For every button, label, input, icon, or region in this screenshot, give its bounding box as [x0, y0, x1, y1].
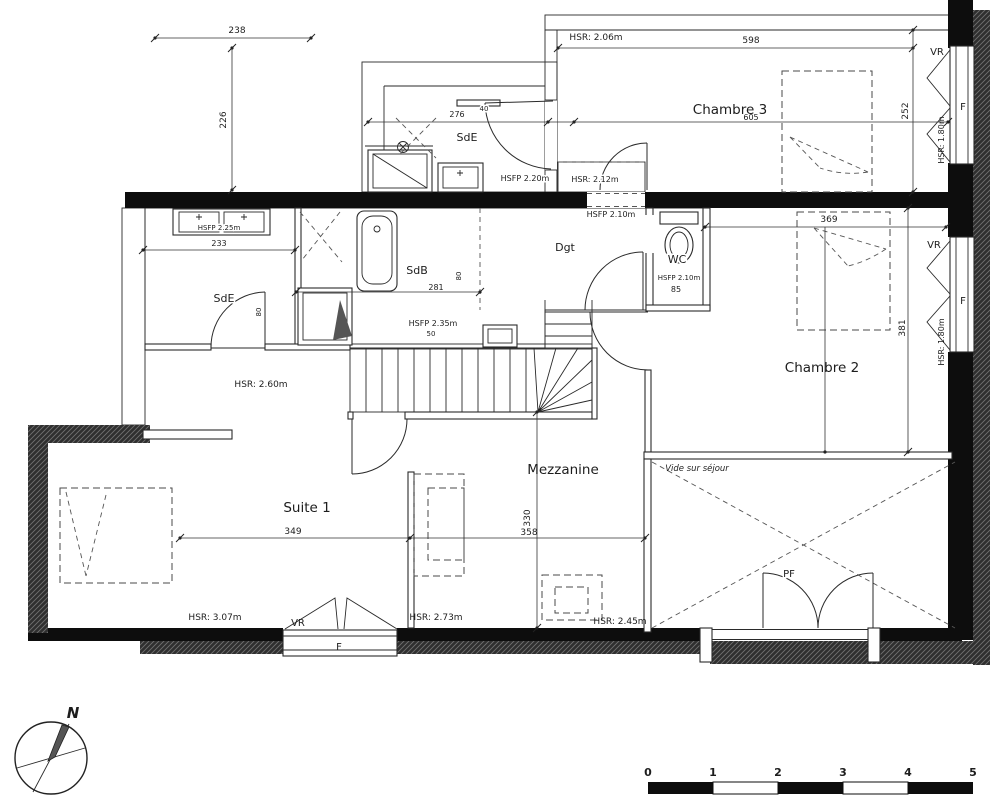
room-label-wc: WC [668, 253, 687, 266]
scale-tick-2: 2 [774, 766, 782, 779]
floor-plan-page: SdE Chambre 3 Dgt WC SdE SdB Chambre 2 S… [0, 0, 992, 800]
dim-door-sde: 80 [255, 308, 263, 317]
dim-line-369 [701, 223, 950, 454]
wall-suite1-top-dark [28, 425, 150, 443]
room-label-dgt: Dgt [555, 241, 575, 254]
dim-349: 349 [284, 527, 301, 537]
room-label-mezzanine: Mezzanine [527, 462, 599, 478]
door-sde-top [485, 101, 553, 169]
window-label-chambre3: F [960, 102, 966, 113]
dim-598: 598 [742, 36, 759, 46]
floor-plan-drawing: SdE Chambre 3 Dgt WC SdE SdB Chambre 2 S… [0, 0, 992, 800]
dim-605: 605 [743, 113, 758, 122]
wall-gap-chambre3-door [587, 192, 645, 208]
wall-right-texture [973, 10, 990, 665]
door-mezzanine [352, 419, 407, 474]
stair-treads [366, 300, 592, 412]
scale-tick-4: 4 [904, 766, 912, 779]
wardrobe-mezzanine-inner [428, 488, 464, 560]
dim-238: 238 [228, 26, 245, 36]
wall-bottom-texture-left [140, 641, 710, 654]
label-hsr-mezzanine-right: HSR: 2.45m [593, 617, 646, 627]
room-label-sdb: SdB [406, 264, 428, 277]
wall-suite1-left [28, 443, 48, 633]
wall-bottom-right [880, 628, 962, 641]
dim-85: 85 [671, 285, 681, 294]
dim-50: 50 [427, 330, 436, 338]
stair-landing-wall [348, 412, 592, 419]
label-hsr-window-top: HSR: 1.80m [937, 116, 946, 163]
room-label-suite1: Suite 1 [283, 500, 330, 516]
stairs [350, 300, 592, 412]
scale-tick-3: 3 [839, 766, 847, 779]
wall-suite1-top-inner [143, 430, 232, 439]
label-hsr-chambre3: HSR: 2.06m [569, 33, 622, 43]
dim-281: 281 [428, 283, 443, 292]
hatch-opening-mezzanine-inner [555, 587, 588, 613]
label-hsfp-sde-left: HSFP 2.25m [198, 224, 241, 232]
wall-bottom-left2 [397, 628, 710, 641]
wall-right-seg2 [948, 163, 973, 237]
compass: N [15, 704, 87, 794]
bed-suite1 [60, 488, 172, 583]
dim-233: 233 [211, 239, 226, 248]
shutter-label-suite1: VR [291, 618, 305, 629]
shutter-label-chambre2: VR [927, 240, 941, 251]
hatch-top-band [545, 15, 950, 30]
scale-bar: 0 1 2 3 4 5 [644, 766, 977, 794]
french-door-label: PF [783, 569, 795, 580]
dim-358: 358 [520, 528, 537, 538]
stair-right-rail [592, 348, 597, 419]
lamp-chambre3 [790, 137, 868, 173]
dim-381: 381 [898, 319, 908, 336]
dim-door-sdb: 80 [455, 272, 463, 281]
bathtub-sdb [357, 211, 397, 291]
hatch-opening-mezzanine [542, 575, 602, 620]
wall-bottom-texture-right [710, 641, 973, 664]
wall-right-seg1 [948, 0, 973, 48]
lamp-suite1 [66, 492, 106, 576]
label-hsr-suite1: HSR: 3.07m [188, 613, 241, 623]
dim-line-598 [554, 44, 917, 52]
dim-line-226 [228, 44, 236, 194]
washbasin-sde-top [438, 163, 483, 192]
wall-main-right [645, 192, 950, 208]
room-label-vide-sejour: Vide sur séjour [665, 463, 729, 474]
windows [283, 46, 974, 656]
bed-chambre2 [797, 212, 890, 330]
window-label-suite1: F [336, 642, 342, 653]
window-label-chambre2: F [960, 296, 966, 307]
label-hsr-window-mid: HSR: 1.80m [937, 318, 946, 365]
door-dgt [585, 252, 643, 310]
dim-40: 40 [480, 105, 489, 113]
dim-252: 252 [901, 102, 911, 119]
room-label-chambre2: Chambre 2 [785, 360, 859, 376]
wall-bottom-left1 [28, 628, 283, 641]
label-hsfp-sdb: HSFP 2.35m [409, 319, 458, 328]
dim-line-276-605 [364, 118, 952, 126]
dim-line-330 [533, 408, 541, 632]
wardrobe-mezzanine [414, 474, 464, 576]
room-label-sde-left: SdE [214, 292, 235, 305]
compass-north-label: N [67, 704, 80, 722]
bed-chambre3 [782, 71, 872, 192]
label-hsfp-dgt: HSFP 2.10m [587, 210, 636, 219]
shutter-label-chambre3: VR [930, 47, 944, 58]
hatch-left-wall [122, 208, 145, 425]
wall-sde-bottom [145, 344, 592, 350]
washer-sde-top [365, 146, 433, 192]
label-hsr-landing: HSR: 2.12m [571, 175, 618, 184]
dim-369: 369 [820, 215, 837, 225]
french-door-sejour [763, 573, 873, 628]
wall-chambre2-left [645, 370, 651, 452]
shower-sdb [298, 288, 352, 345]
slope-marks-sdb [300, 212, 342, 262]
dim-276: 276 [449, 110, 464, 119]
dim-226: 226 [219, 111, 229, 128]
label-hsfp-sde-top: HSFP 2.20m [501, 174, 550, 183]
label-hsr-hall: HSR: 2.60m [234, 380, 287, 390]
scale-tick-0: 0 [644, 766, 652, 779]
wall-right-seg3 [948, 352, 973, 640]
door-chambre2 [590, 312, 648, 370]
dim-330: 330 [523, 509, 533, 526]
wall-main-left [125, 192, 587, 208]
window-chambre3 [927, 46, 974, 164]
scale-tick-5: 5 [969, 766, 977, 779]
label-hsfp-wc: HSFP 2.10m [658, 274, 701, 282]
room-label-sde-top: SdE [457, 131, 478, 144]
wall-suite1-mezzanine [408, 472, 414, 628]
scale-tick-1: 1 [709, 766, 717, 779]
label-hsr-mezzanine: HSR: 2.73m [409, 613, 462, 623]
vide-cross [652, 462, 955, 628]
window-chambre2 [927, 237, 974, 352]
